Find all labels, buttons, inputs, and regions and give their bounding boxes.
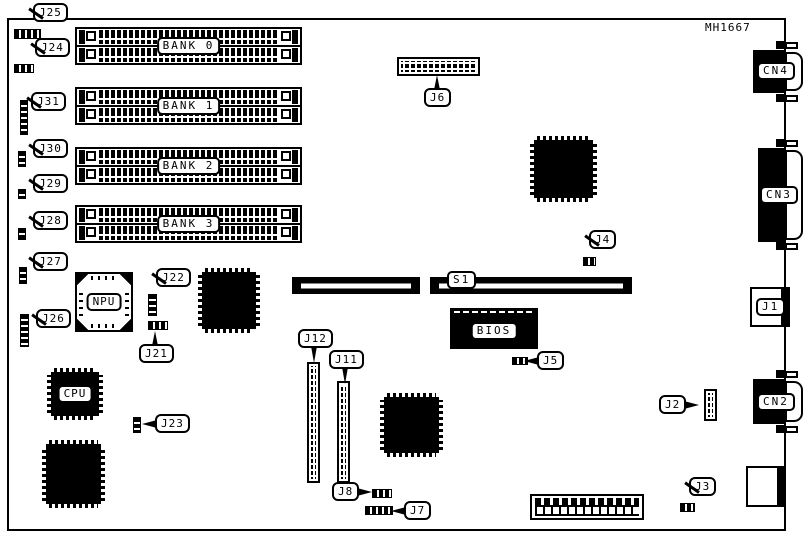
bank-0-label: BANK 0 (157, 37, 221, 55)
callout-j3: J3 (689, 477, 716, 496)
ic-chip (530, 136, 597, 202)
cn3-label: CN3 (760, 186, 798, 204)
jumper-j29-pins (18, 189, 26, 199)
pin-header-j6 (397, 57, 480, 76)
part-number: MH1667 (705, 21, 751, 34)
callout-j31: J31 (31, 92, 66, 111)
jumper-j30-pins (18, 151, 26, 167)
callout-j26: J26 (36, 309, 71, 328)
socket-latch-icon (292, 208, 298, 222)
jumper-j31-pins (20, 100, 28, 135)
screw-tab-icon (785, 243, 798, 250)
jumper-j24-pins (14, 64, 34, 73)
socket-latch-icon (292, 48, 298, 62)
callout-j21: J21 (139, 344, 174, 363)
socket-latch-icon (292, 108, 298, 122)
simm-bank-1: BANK 1 (75, 87, 302, 125)
callout-j8: J8 (332, 482, 359, 501)
jumper-j3-pins (680, 503, 695, 512)
bank-2-label: BANK 2 (157, 157, 221, 175)
screw-tab-icon (785, 426, 798, 433)
ic-chip (198, 268, 260, 333)
callout-j30: J30 (33, 139, 68, 158)
npu-socket: NPU (75, 272, 133, 332)
cpu-chip: CPU (47, 368, 103, 420)
cn2-label: CN2 (757, 393, 795, 411)
socket-latch-icon (292, 150, 298, 164)
screw-tab-icon (776, 94, 785, 102)
jumper-j22-pins (148, 294, 157, 316)
screw-tab-icon (785, 42, 798, 49)
motherboard-diagram: { "part_number": "MH1667", "banks": { "b… (0, 0, 807, 539)
bank-3-label: BANK 3 (157, 215, 221, 233)
ic-chip (380, 393, 443, 457)
simm-bank-0: BANK 0 (75, 27, 302, 65)
npu-label: NPU (87, 293, 122, 311)
cn4-label: CN4 (757, 62, 795, 80)
pin-header-j2 (704, 389, 717, 421)
power-pins-row (535, 505, 639, 516)
socket-latch-icon (292, 226, 298, 240)
callout-j6: J6 (424, 88, 451, 107)
screw-tab-icon (785, 95, 798, 102)
bios-label: BIOS (471, 322, 518, 340)
callout-j7: J7 (404, 501, 431, 520)
socket-latch-icon (79, 226, 85, 240)
pin-header-j11 (337, 381, 350, 483)
callout-j27: J27 (33, 252, 68, 271)
bank-1-label: BANK 1 (157, 97, 221, 115)
jumper-j25-pins (14, 29, 41, 39)
cpu-label: CPU (58, 385, 93, 403)
jumper-j7-pins (365, 506, 393, 515)
jumper-j8-pins (372, 489, 392, 498)
screw-tab-icon (776, 370, 785, 378)
screw-tab-icon (785, 371, 798, 378)
socket-latch-icon (79, 30, 85, 44)
screw-tab-icon (776, 242, 785, 250)
screw-tab-icon (785, 140, 798, 147)
jumper-j23-pins (133, 417, 141, 433)
power-connector (530, 494, 644, 520)
ic-chip (42, 440, 105, 508)
simm-bank-2: BANK 2 (75, 147, 302, 185)
socket-latch-icon (79, 90, 85, 104)
callout-j11: J11 (329, 350, 364, 369)
callout-j22: J22 (156, 268, 191, 287)
simm-bank-3: BANK 3 (75, 205, 302, 243)
socket-latch-icon (292, 90, 298, 104)
pin-header-j12 (307, 362, 320, 483)
expansion-slot (292, 277, 420, 294)
screw-tab-icon (776, 139, 785, 147)
callout-j2: J2 (659, 395, 686, 414)
bios-chip: BIOS (450, 308, 538, 349)
callout-j28: J28 (33, 211, 68, 230)
jumper-j21-pins (148, 321, 168, 330)
jumper-j4-pins (583, 257, 596, 266)
din-body (746, 466, 779, 507)
screw-tab-icon (776, 425, 785, 433)
socket-latch-icon (79, 208, 85, 222)
s1-label: S1 (447, 271, 476, 289)
screw-tab-icon (776, 41, 785, 49)
jumper-j27-pins (19, 267, 27, 284)
callout-j25: J25 (33, 3, 68, 22)
callout-j12: J12 (298, 329, 333, 348)
callout-j5: J5 (537, 351, 564, 370)
callout-j23: J23 (155, 414, 190, 433)
callout-j29: J29 (33, 174, 68, 193)
callout-j4: J4 (589, 230, 616, 249)
socket-latch-icon (292, 168, 298, 182)
socket-latch-icon (79, 48, 85, 62)
socket-latch-icon (79, 168, 85, 182)
socket-latch-icon (292, 30, 298, 44)
callout-j24: J24 (35, 38, 70, 57)
socket-latch-icon (79, 108, 85, 122)
j1-label: J1 (756, 298, 785, 316)
din-edge (777, 466, 785, 507)
jumper-j28-pins (18, 228, 26, 240)
socket-latch-icon (79, 150, 85, 164)
jumper-j26-pins (20, 314, 29, 347)
